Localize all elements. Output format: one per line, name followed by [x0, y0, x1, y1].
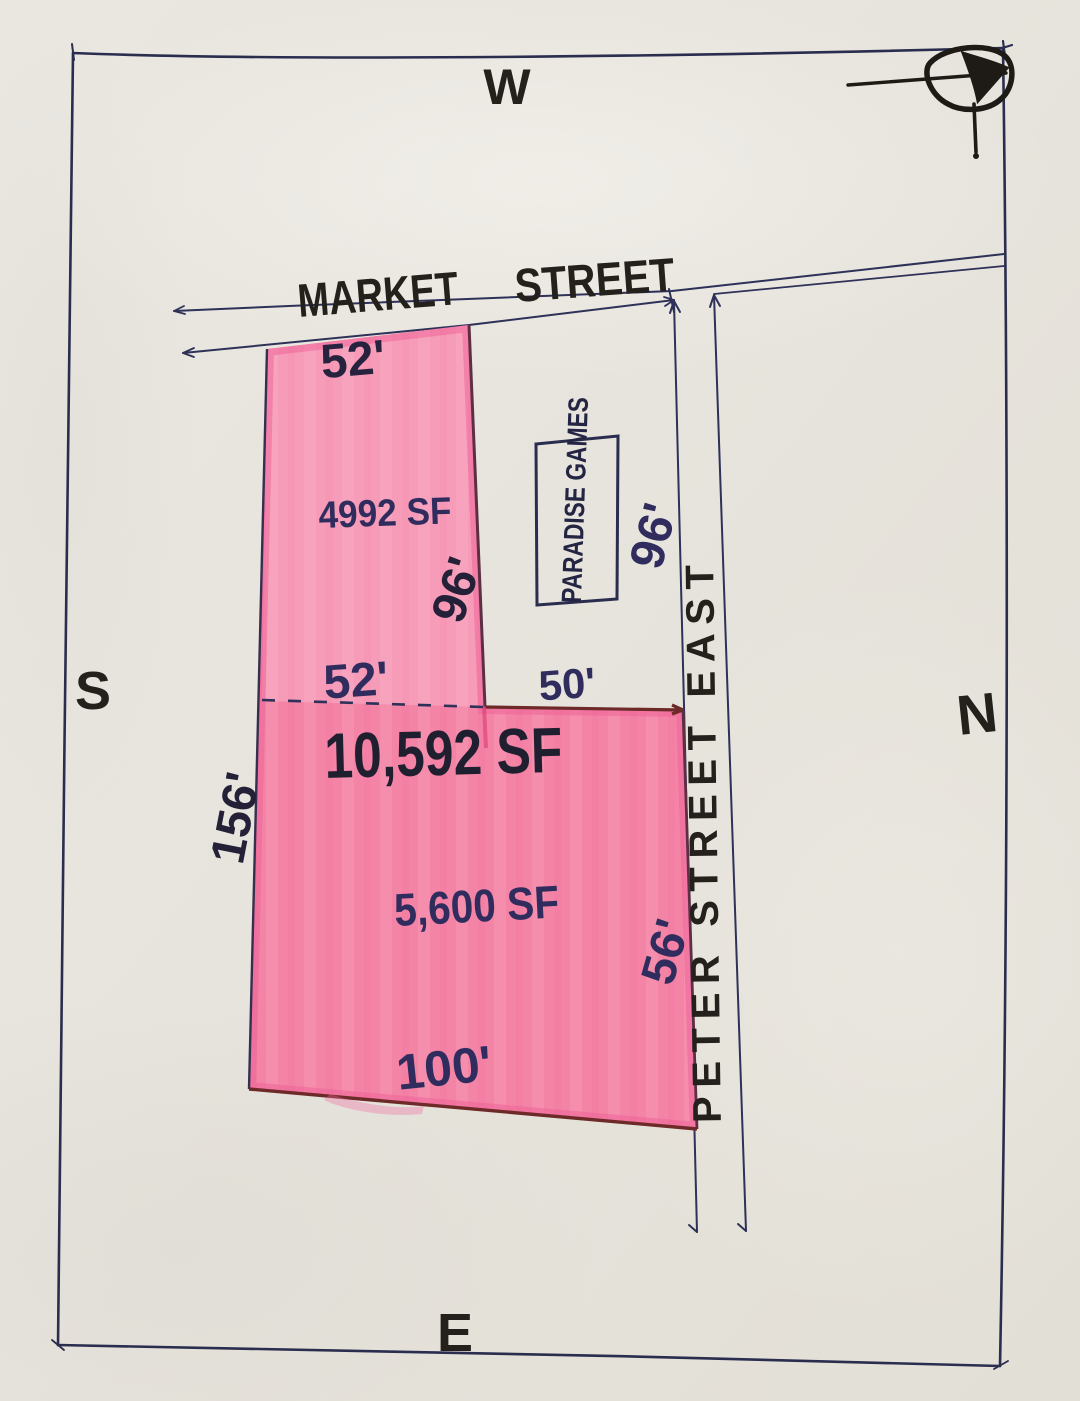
svg-text:5,600 SF: 5,600 SF — [393, 875, 560, 936]
svg-text:10,592 SF: 10,592 SF — [323, 714, 563, 792]
svg-text:100': 100' — [394, 1035, 495, 1101]
svg-text:PETER STREET EAST: PETER STREET EAST — [678, 565, 730, 1124]
svg-text:4992 SF: 4992 SF — [318, 490, 452, 537]
svg-text:E: E — [437, 1303, 473, 1363]
svg-text:N: N — [954, 680, 1001, 747]
svg-text:S: S — [75, 661, 111, 721]
svg-text:52': 52' — [322, 652, 390, 709]
svg-text:W: W — [483, 59, 531, 115]
svg-text:52': 52' — [318, 331, 387, 389]
svg-text:50': 50' — [537, 659, 597, 710]
